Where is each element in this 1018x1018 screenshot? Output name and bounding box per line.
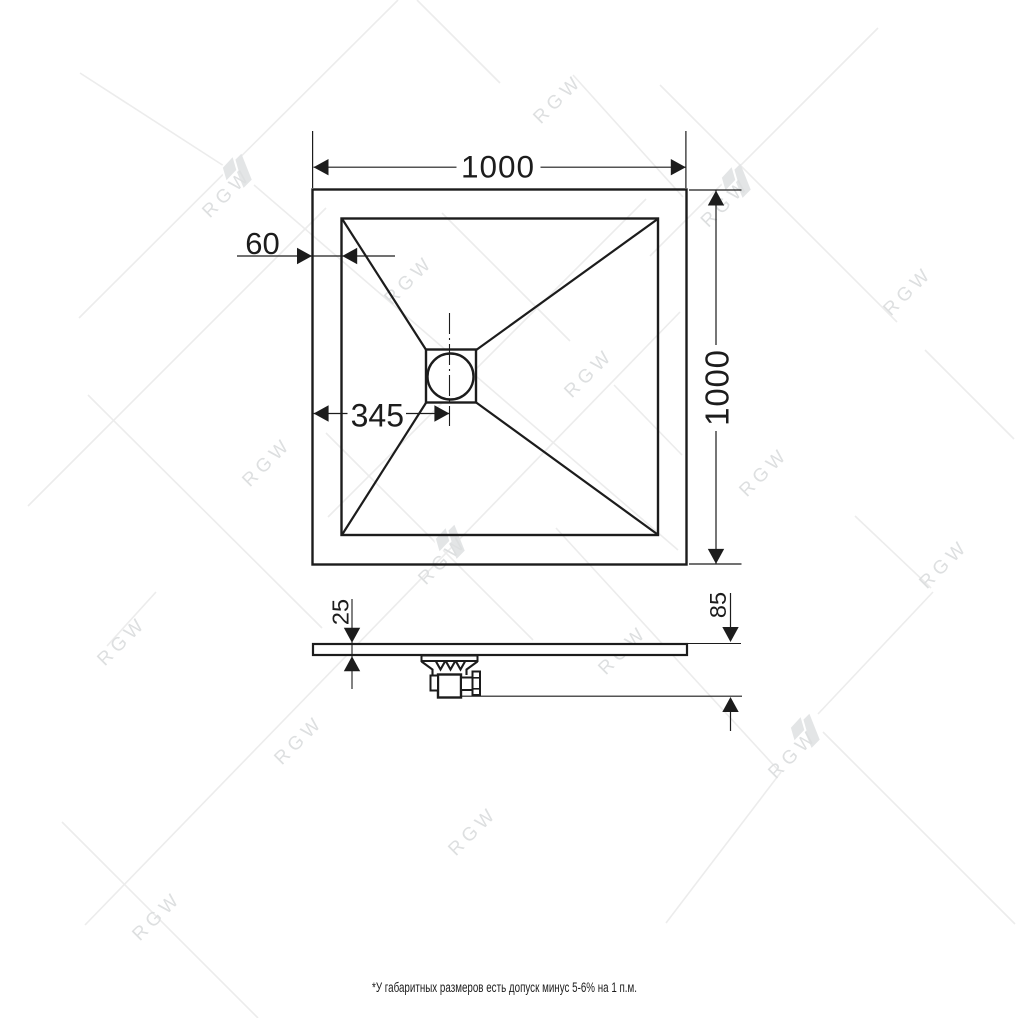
svg-text:RGW: RGW <box>879 262 937 320</box>
svg-text:85: 85 <box>705 592 731 618</box>
svg-text:RGW: RGW <box>560 344 618 402</box>
svg-text:RGW: RGW <box>270 711 328 769</box>
svg-text:1000: 1000 <box>461 149 535 185</box>
svg-text:RGW: RGW <box>238 433 296 491</box>
svg-text:*У габаритных размеров есть до: *У габаритных размеров есть допуск минус… <box>372 980 637 995</box>
svg-text:RGW: RGW <box>444 802 502 860</box>
svg-text:RGW: RGW <box>529 70 587 128</box>
svg-text:RGW: RGW <box>735 443 793 501</box>
svg-text:RGW: RGW <box>915 535 973 593</box>
svg-text:25: 25 <box>327 599 353 625</box>
svg-text:1000: 1000 <box>699 349 736 426</box>
svg-text:RGW: RGW <box>380 251 438 309</box>
svg-text:60: 60 <box>245 226 279 261</box>
svg-text:RGW: RGW <box>93 612 151 670</box>
svg-text:345: 345 <box>351 398 404 434</box>
